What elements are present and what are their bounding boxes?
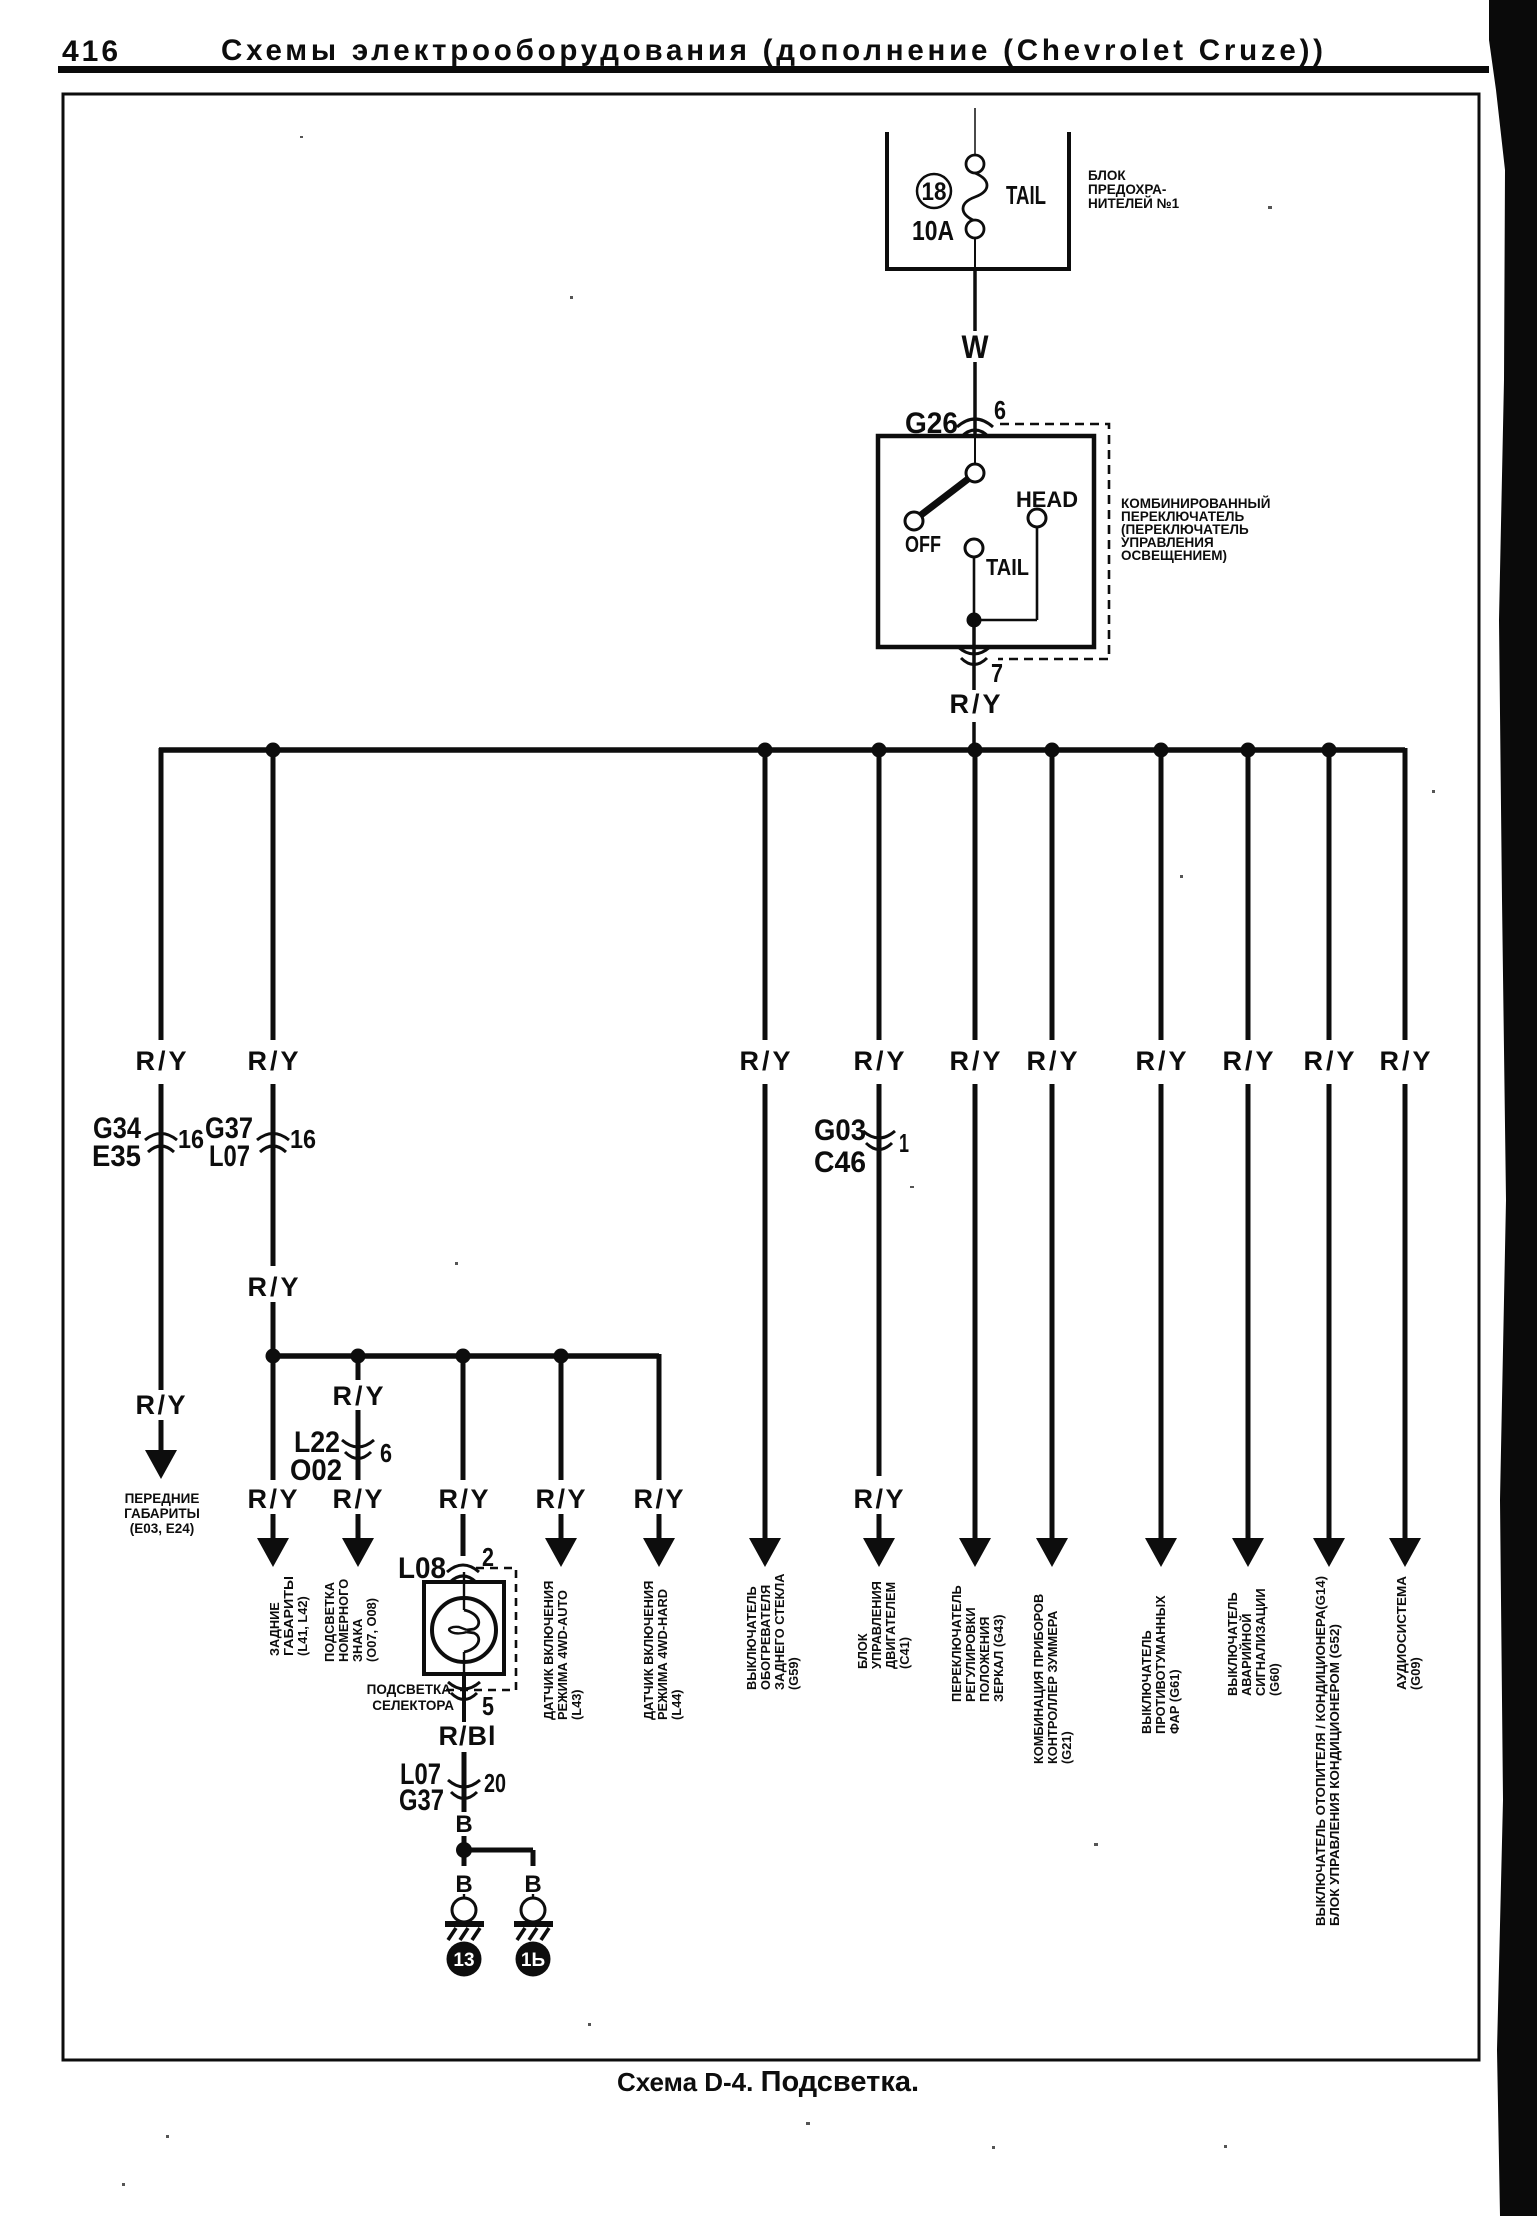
svg-text:R/Y: R/Y (740, 1046, 791, 1076)
svg-text:R/Y: R/Y (136, 1046, 187, 1076)
svg-text:R/Y: R/Y (1223, 1046, 1274, 1076)
svg-text:БЛОК: БЛОК (1088, 168, 1126, 183)
svg-text:ОБОГРЕВАТЕЛЯ: ОБОГРЕВАТЕЛЯ (758, 1585, 773, 1690)
svg-text:ДВИГАТЕЛЕМ: ДВИГАТЕЛЕМ (883, 1582, 898, 1669)
svg-text:TAIL: TAIL (1006, 180, 1046, 210)
svg-text:B: B (455, 1811, 472, 1838)
svg-text:РЕЖИМА 4WD-HARD: РЕЖИМА 4WD-HARD (655, 1589, 670, 1720)
svg-text:Схема D-4. Подсветка.: Схема D-4. Подсветка. (617, 2066, 919, 2098)
svg-text:(L43): (L43) (569, 1689, 584, 1720)
svg-text:416: 416 (62, 35, 121, 68)
svg-text:1: 1 (899, 1128, 909, 1158)
svg-text:20: 20 (484, 1768, 506, 1798)
svg-text:(Е03, Е24): (Е03, Е24) (130, 1521, 195, 1536)
svg-text:R/Y: R/Y (1304, 1046, 1355, 1076)
svg-text:ВЫКЛЮЧАТЕЛЬ: ВЫКЛЮЧАТЕЛЬ (1139, 1630, 1154, 1734)
svg-text:ВЫКЛЮЧАТЕЛЬ: ВЫКЛЮЧАТЕЛЬ (744, 1586, 759, 1690)
svg-text:R/Y: R/Y (950, 1046, 1001, 1076)
svg-text:R/Y: R/Y (248, 1484, 299, 1514)
svg-text:13: 13 (453, 1950, 474, 1971)
svg-text:ВЫКЛЮЧАТЕЛЬ ОТОПИТЕЛЯ / КОНДИЦ: ВЫКЛЮЧАТЕЛЬ ОТОПИТЕЛЯ / КОНДИЦИОНЕРА(G14… (1313, 1576, 1328, 1926)
svg-text:ЗАДНЕГО СТЕКЛА: ЗАДНЕГО СТЕКЛА (772, 1573, 787, 1690)
svg-text:ПРОТИВОТУМАННЫХ: ПРОТИВОТУМАННЫХ (1153, 1595, 1168, 1734)
svg-text:G03: G03 (814, 1114, 866, 1147)
svg-text:СЕЛЕКТОРА: СЕЛЕКТОРА (372, 1698, 454, 1713)
svg-text:R/Y: R/Y (950, 689, 1001, 719)
svg-text:W: W (962, 329, 990, 365)
svg-text:7: 7 (991, 658, 1003, 688)
svg-text:OFF: OFF (905, 531, 941, 557)
svg-text:R/Bl: R/Bl (439, 1721, 496, 1751)
svg-text:R/Y: R/Y (1380, 1046, 1431, 1076)
svg-text:R/Y: R/Y (136, 1390, 187, 1420)
svg-text:БЛОК УПРАВЛЕНИЯ КОНДИЦИОНЕРОМ: БЛОК УПРАВЛЕНИЯ КОНДИЦИОНЕРОМ (G52) (1327, 1624, 1342, 1926)
svg-text:R/Y: R/Y (854, 1484, 905, 1514)
svg-text:АВАРИЙНОЙ: АВАРИЙНОЙ (1239, 1614, 1254, 1696)
svg-text:18: 18 (922, 178, 947, 206)
svg-text:G37: G37 (399, 1784, 444, 1817)
svg-text:(L41, L42): (L41, L42) (295, 1596, 310, 1656)
svg-text:R/Y: R/Y (1136, 1046, 1187, 1076)
svg-text:(О07, О08): (О07, О08) (364, 1598, 379, 1662)
svg-text:(G09): (G09) (1408, 1657, 1423, 1690)
svg-text:КОНТРОЛЛЕР ЗУММЕРА: КОНТРОЛЛЕР ЗУММЕРА (1045, 1611, 1060, 1764)
svg-text:ГАБАРИТЫ: ГАБАРИТЫ (281, 1576, 296, 1656)
svg-text:C46: C46 (814, 1146, 866, 1179)
svg-text:R/Y: R/Y (536, 1484, 587, 1514)
svg-text:1Ь: 1Ь (521, 1950, 545, 1971)
svg-text:КОМБИНАЦИЯ ПРИБОРОВ: КОМБИНАЦИЯ ПРИБОРОВ (1031, 1594, 1046, 1764)
svg-text:ГАБАРИТЫ: ГАБАРИТЫ (124, 1506, 200, 1521)
svg-text:РЕЖИМА 4WD-AUTO: РЕЖИМА 4WD-AUTO (555, 1590, 570, 1720)
svg-text:ПОДСВЕТКА: ПОДСВЕТКА (322, 1582, 337, 1662)
svg-text:УПРАВЛЕНИЯ: УПРАВЛЕНИЯ (869, 1581, 884, 1669)
svg-text:R/Y: R/Y (854, 1046, 905, 1076)
svg-text:B: B (455, 1871, 472, 1898)
svg-text:HEAD: HEAD (1016, 487, 1078, 512)
svg-text:R/Y: R/Y (248, 1272, 299, 1302)
svg-text:L07: L07 (209, 1140, 250, 1173)
svg-text:O02: O02 (290, 1454, 342, 1487)
svg-text:АУДИОСИСТЕМА: АУДИОСИСТЕМА (1394, 1576, 1409, 1690)
svg-text:16: 16 (290, 1124, 316, 1154)
svg-text:R/Y: R/Y (1027, 1046, 1078, 1076)
svg-text:B: B (524, 1871, 541, 1898)
svg-text:НОМЕРНОГО: НОМЕРНОГО (336, 1579, 351, 1662)
svg-text:(G21): (G21) (1059, 1731, 1074, 1764)
svg-text:НИТЕЛЕЙ №1: НИТЕЛЕЙ №1 (1088, 196, 1180, 211)
svg-text:R/Y: R/Y (333, 1381, 384, 1411)
svg-text:ЗНАКА: ЗНАКА (350, 1618, 365, 1662)
svg-text:ПОДСВЕТКА: ПОДСВЕТКА (367, 1682, 452, 1697)
svg-text:5: 5 (482, 1691, 494, 1721)
svg-text:ФАР (G61): ФАР (G61) (1167, 1669, 1182, 1734)
svg-text:R/Y: R/Y (439, 1484, 490, 1514)
svg-text:R/Y: R/Y (634, 1484, 685, 1514)
svg-text:ПЕРЕДНИЕ: ПЕРЕДНИЕ (125, 1491, 200, 1506)
svg-text:(G59): (G59) (786, 1657, 801, 1690)
svg-text:(L44): (L44) (669, 1689, 684, 1720)
svg-text:E35: E35 (92, 1140, 141, 1173)
svg-text:ПЕРЕКЛЮЧАТЕЛЬ: ПЕРЕКЛЮЧАТЕЛЬ (949, 1585, 964, 1702)
svg-text:ПРЕДОХРА-: ПРЕДОХРА- (1088, 182, 1166, 197)
svg-text:TAIL: TAIL (986, 554, 1029, 580)
svg-text:ДАТЧИК ВКЛЮЧЕНИЯ: ДАТЧИК ВКЛЮЧЕНИЯ (541, 1581, 556, 1720)
svg-text:ЗАДНИЕ: ЗАДНИЕ (267, 1602, 282, 1656)
svg-text:ДАТЧИК ВКЛЮЧЕНИЯ: ДАТЧИК ВКЛЮЧЕНИЯ (641, 1581, 656, 1720)
svg-text:16: 16 (178, 1124, 204, 1154)
svg-text:ВЫКЛЮЧАТЕЛЬ: ВЫКЛЮЧАТЕЛЬ (1225, 1592, 1240, 1696)
svg-text:(G60): (G60) (1267, 1663, 1282, 1696)
svg-text:Схемы электрооборудования (доп: Схемы электрооборудования (дополнение (C… (221, 34, 1323, 67)
svg-text:(С41): (С41) (897, 1637, 912, 1669)
svg-text:10A: 10A (912, 215, 954, 246)
svg-text:6: 6 (380, 1438, 392, 1468)
svg-text:R/Y: R/Y (248, 1046, 299, 1076)
svg-text:6: 6 (994, 395, 1006, 425)
svg-text:РЕГУЛИРОВКИ: РЕГУЛИРОВКИ (963, 1607, 978, 1702)
svg-text:R/Y: R/Y (333, 1484, 384, 1514)
svg-text:ОСВЕЩЕНИЕМ): ОСВЕЩЕНИЕМ) (1121, 548, 1227, 563)
svg-text:СИГНАЛИЗАЦИИ: СИГНАЛИЗАЦИИ (1253, 1588, 1268, 1696)
svg-text:БЛОК: БЛОК (855, 1633, 870, 1669)
svg-text:ПОЛОЖЕНИЯ: ПОЛОЖЕНИЯ (977, 1617, 992, 1702)
svg-text:ЗЕРКАЛ (G43): ЗЕРКАЛ (G43) (991, 1614, 1006, 1702)
